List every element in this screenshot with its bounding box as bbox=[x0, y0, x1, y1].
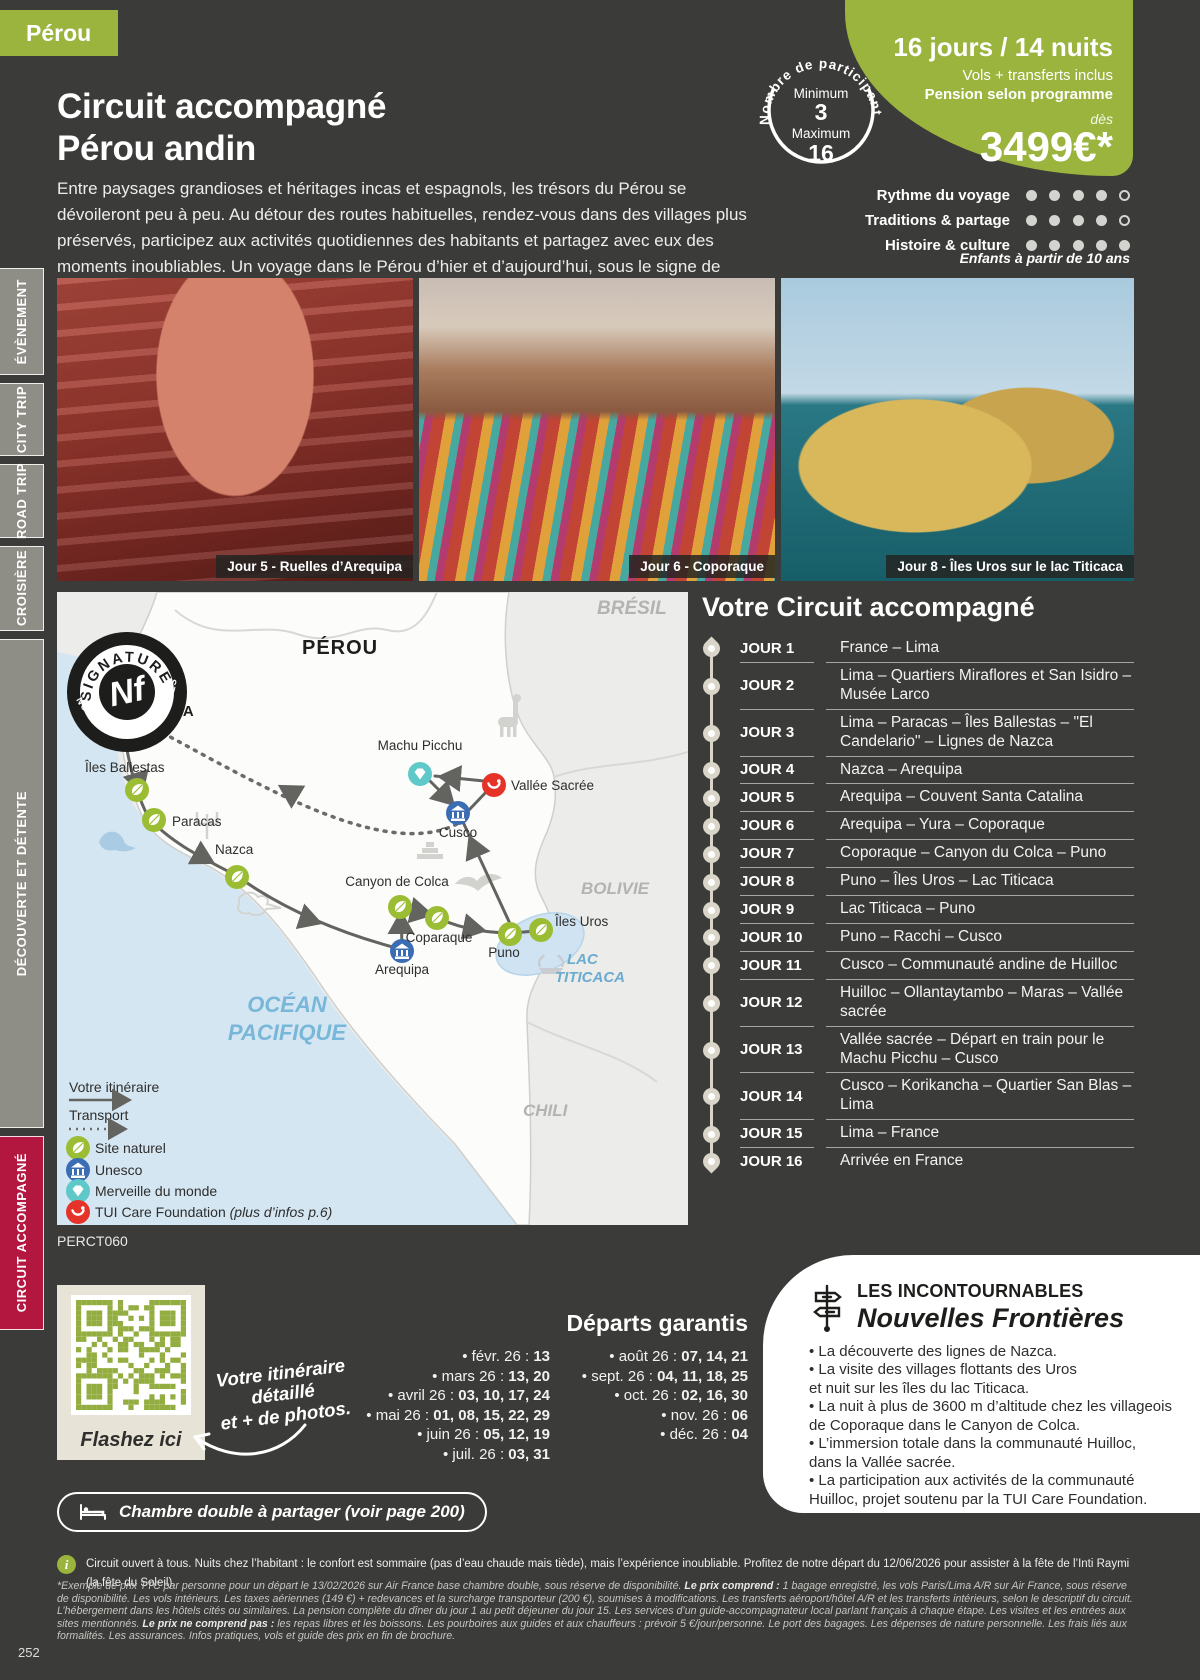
highlights-kicker: LES INCONTOURNABLES bbox=[857, 1281, 1124, 1302]
day-description: Cusco – Korikancha – Quartier San Blas –… bbox=[826, 1073, 1134, 1120]
timeline-marker bbox=[700, 784, 740, 812]
timeline-marker bbox=[700, 1148, 740, 1175]
day-label: JOUR 16 bbox=[740, 1148, 814, 1175]
timeline-dot-icon bbox=[703, 1088, 720, 1105]
day-label: JOUR 9 bbox=[740, 896, 814, 924]
itinerary-row: JOUR 6Arequipa – Yura – Coporaque bbox=[700, 812, 1134, 840]
machu-picchu-marker bbox=[408, 762, 432, 786]
catalog-page: ÉVÈNEMENT CITY TRIP ROAD TRIP CROISIÈRE … bbox=[0, 0, 1200, 1680]
departure-days: 04, 11, 18, 25 bbox=[657, 1368, 748, 1385]
itinerary-row: JOUR 15Lima – France bbox=[700, 1120, 1134, 1148]
sidebar-item-label: DÉCOUVERTE ET DÉTENTE bbox=[14, 791, 29, 976]
timeline-dot-icon bbox=[703, 818, 720, 835]
departure-days: 07, 14, 21 bbox=[681, 1348, 748, 1365]
legend-tui-care-label: TUI Care Foundation (plus d’infos p.6) bbox=[95, 1204, 332, 1220]
photo-caption: Jour 6 - Coporaque bbox=[629, 555, 775, 578]
legend-unesco-label: Unesco bbox=[95, 1162, 143, 1178]
sidebar-item-circuit-accompagne[interactable]: CIRCUIT ACCOMPAGNÉ bbox=[0, 1136, 44, 1330]
participants-min-value: 3 bbox=[815, 99, 828, 125]
itinerary-row: JOUR 14Cusco – Korikancha – Quartier San… bbox=[700, 1073, 1134, 1120]
room-note-label: Chambre double à partager (voir page 200… bbox=[119, 1502, 465, 1522]
map-label-vallee-sacree: Vallée Sacrée bbox=[511, 778, 594, 793]
timeline-dot-icon bbox=[703, 846, 720, 863]
rating-dot-filled bbox=[1073, 190, 1084, 201]
departure-row: • juil. 26 : 03, 31 bbox=[260, 1445, 550, 1465]
itinerary-row: JOUR 10Puno – Racchi – Cusco bbox=[700, 924, 1134, 952]
map-label-nazca: Nazca bbox=[215, 842, 254, 857]
sidebar-item-label: CIRCUIT ACCOMPAGNÉ bbox=[14, 1153, 29, 1312]
timeline-dot-icon bbox=[703, 995, 720, 1012]
map-label-iles-uros: Îles Uros bbox=[554, 914, 609, 929]
rating-dot-empty bbox=[1119, 215, 1130, 226]
itinerary-row: JOUR 4Nazca – Arequipa bbox=[700, 757, 1134, 785]
sidebar-item-evenement[interactable]: ÉVÈNEMENT bbox=[0, 268, 44, 375]
day-description: Lac Titicaca – Puno bbox=[826, 896, 1134, 924]
puno-marker bbox=[498, 922, 522, 946]
map-label-coparaque: Coparaque bbox=[406, 930, 473, 945]
departure-month: • nov. 26 : bbox=[661, 1407, 731, 1424]
page-number: 252 bbox=[18, 1645, 40, 1660]
signpost-icon bbox=[809, 1281, 845, 1333]
rating-dots bbox=[1026, 215, 1130, 226]
rating-dot-filled bbox=[1026, 190, 1037, 201]
itinerary-row: JOUR 7Coporaque – Canyon du Colca – Puno bbox=[700, 840, 1134, 868]
rating-dots bbox=[1026, 190, 1130, 201]
timeline-marker bbox=[700, 710, 740, 757]
departure-days: 02, 16, 30 bbox=[681, 1387, 748, 1404]
timeline-dot-icon bbox=[703, 929, 720, 946]
vallee-sacree-marker bbox=[482, 773, 506, 797]
highlights-box: LES INCONTOURNABLES Nouvelles Frontières… bbox=[763, 1255, 1200, 1513]
qr-code[interactable] bbox=[71, 1295, 191, 1415]
timeline-marker bbox=[700, 924, 740, 952]
itinerary-row: JOUR 5Arequipa – Couvent Santa Catalina bbox=[700, 784, 1134, 812]
day-description: Lima – Paracas – Îles Ballestas – "El Ca… bbox=[826, 710, 1134, 757]
day-label: JOUR 15 bbox=[740, 1120, 814, 1148]
departure-row: • oct. 26 : 02, 16, 30 bbox=[470, 1386, 748, 1406]
room-note-pill: Chambre double à partager (voir page 200… bbox=[57, 1492, 487, 1532]
timeline-dot-icon bbox=[703, 790, 720, 807]
day-description: Cusco – Communauté andine de Huilloc bbox=[826, 952, 1134, 980]
day-label: JOUR 8 bbox=[740, 868, 814, 896]
departure-days: 04 bbox=[731, 1426, 748, 1443]
canyon-colca-marker bbox=[388, 895, 412, 919]
children-note: Enfants à partir de 10 ans bbox=[700, 250, 1130, 266]
departures-title: Départs garantis bbox=[448, 1310, 748, 1337]
legend-transport-label: Transport bbox=[69, 1107, 129, 1123]
highlight-item: • La participation aux activités de la c… bbox=[809, 1472, 1176, 1509]
timeline-marker bbox=[700, 635, 740, 663]
highlight-item: • La découverte des lignes de Nazca. bbox=[809, 1343, 1176, 1361]
title-line1: Circuit accompagné bbox=[57, 86, 386, 128]
map-label-paracas: Paracas bbox=[172, 814, 222, 829]
paracas-marker bbox=[142, 808, 166, 832]
departure-month: • juil. 26 : bbox=[443, 1446, 508, 1463]
map-label-bresil: BRÉSIL bbox=[597, 597, 667, 619]
sidebar-item-label: ÉVÈNEMENT bbox=[14, 279, 29, 364]
highlights-list: • La découverte des lignes de Nazca.• La… bbox=[809, 1343, 1176, 1509]
sidebar-item-label: ROAD TRIP bbox=[14, 463, 29, 539]
timeline-dot-icon bbox=[703, 902, 720, 919]
day-label: JOUR 5 bbox=[740, 784, 814, 812]
legal-segment: *Exemple de prix TTC par personne pour u… bbox=[57, 1580, 684, 1592]
timeline-marker bbox=[700, 980, 740, 1027]
map-label-ocean-1: OCÉAN bbox=[247, 992, 328, 1017]
title-line2: Pérou andin bbox=[57, 128, 386, 170]
highlight-item: • La visite des villages flottants des U… bbox=[809, 1361, 1176, 1398]
day-label: JOUR 14 bbox=[740, 1073, 814, 1120]
sidebar-item-label: CROISIÈRE bbox=[14, 550, 29, 626]
day-description: Coporaque – Canyon du Colca – Puno bbox=[826, 840, 1134, 868]
rating-label: Traditions & partage bbox=[865, 212, 1010, 229]
sidebar-item-croisiere[interactable]: CROISIÈRE bbox=[0, 546, 44, 631]
day-description: Puno – Racchi – Cusco bbox=[826, 924, 1134, 952]
highlight-item: • La nuit à plus de 3600 m d’altitude ch… bbox=[809, 1398, 1176, 1435]
itinerary-title: Votre Circuit accompagné bbox=[702, 592, 1134, 623]
map-label-chili: CHILI bbox=[523, 1101, 569, 1120]
itinerary-panel: Votre Circuit accompagné JOUR 1France – … bbox=[700, 592, 1134, 1175]
timeline-dot-icon bbox=[703, 874, 720, 891]
sidebar-item-label: CITY TRIP bbox=[14, 386, 29, 453]
day-description: Lima – France bbox=[826, 1120, 1134, 1148]
departure-row: • déc. 26 : 04 bbox=[470, 1425, 748, 1445]
photo-arequipa-alley: Jour 5 - Ruelles d’Arequipa bbox=[57, 278, 413, 581]
rating-dot-empty bbox=[1119, 190, 1130, 201]
departure-days: 03, 31 bbox=[508, 1446, 550, 1463]
legal-bold-segment: Le prix ne comprend pas : bbox=[142, 1618, 277, 1630]
day-label: JOUR 6 bbox=[740, 812, 814, 840]
timeline-dot-icon bbox=[703, 1042, 720, 1059]
timeline-marker bbox=[700, 896, 740, 924]
timeline-marker bbox=[700, 757, 740, 785]
timeline-marker bbox=[700, 840, 740, 868]
departure-month: • août 26 : bbox=[609, 1348, 681, 1365]
map-label-lac-2: TITICACA bbox=[555, 969, 625, 986]
rating-dot-filled bbox=[1073, 215, 1084, 226]
photo-coporaque-portrait: Jour 6 - Coporaque bbox=[419, 278, 775, 581]
day-description: Lima – Quartiers Miraflores et San Isidr… bbox=[826, 663, 1134, 710]
timeline-dot-icon bbox=[703, 762, 720, 779]
day-description: Arequipa – Couvent Santa Catalina bbox=[826, 784, 1134, 812]
timeline-marker bbox=[700, 952, 740, 980]
info-icon: i bbox=[57, 1555, 76, 1574]
departures-column-2: • août 26 : 07, 14, 21• sept. 26 : 04, 1… bbox=[470, 1347, 748, 1445]
departure-row: • sept. 26 : 04, 11, 18, 25 bbox=[470, 1367, 748, 1387]
departure-month: • avril 26 : bbox=[388, 1387, 458, 1404]
rating-label: Rythme du voyage bbox=[877, 187, 1010, 204]
rating-dot-filled bbox=[1049, 190, 1060, 201]
itinerary-row: JOUR 16Arrivée en France bbox=[700, 1148, 1134, 1175]
day-description: Arrivée en France bbox=[826, 1148, 1134, 1175]
sidebar-item-decouverte-detente[interactable]: DÉCOUVERTE ET DÉTENTE bbox=[0, 639, 44, 1128]
legal-bold-segment: Le prix comprend : bbox=[684, 1580, 782, 1592]
day-label: JOUR 7 bbox=[740, 840, 814, 868]
iles-ballestas-marker bbox=[125, 778, 149, 802]
itinerary-row: JOUR 1France – Lima bbox=[700, 635, 1134, 663]
legend-tui-care-note: (plus d’infos p.6) bbox=[230, 1204, 333, 1220]
map-label-arequipa: Arequipa bbox=[375, 962, 430, 977]
timeline-pin-start-icon bbox=[699, 637, 723, 661]
map-label-perou: PÉROU bbox=[302, 636, 378, 659]
nazca-marker bbox=[225, 865, 249, 889]
rating-dot-filled bbox=[1049, 215, 1060, 226]
timeline-dot-icon bbox=[703, 725, 720, 742]
day-description: Vallée sacrée – Départ en train pour le … bbox=[826, 1027, 1134, 1074]
itinerary-map: PÉROU BRÉSIL BOLIVIE CHILI OCÉAN PACIFIQ… bbox=[57, 592, 688, 1225]
timeline-marker bbox=[700, 812, 740, 840]
itinerary-row: JOUR 12Huilloc – Ollantaytambo – Maras –… bbox=[700, 980, 1134, 1027]
participants-max-label: Maximum bbox=[792, 126, 851, 141]
day-label: JOUR 11 bbox=[740, 952, 814, 980]
timeline-marker bbox=[700, 1120, 740, 1148]
itinerary-list: JOUR 1France – LimaJOUR 2Lima – Quartier… bbox=[700, 635, 1134, 1175]
departure-month: • déc. 26 : bbox=[660, 1426, 731, 1443]
departure-row: • août 26 : 07, 14, 21 bbox=[470, 1347, 748, 1367]
itinerary-row: JOUR 2Lima – Quartiers Miraflores et San… bbox=[700, 663, 1134, 710]
photo-caption: Jour 8 - Îles Uros sur le lac Titicaca bbox=[886, 555, 1134, 578]
rating-row: Traditions & partage bbox=[700, 208, 1130, 233]
cusco-marker bbox=[446, 801, 470, 825]
rating-dot-filled bbox=[1096, 215, 1107, 226]
day-label: JOUR 12 bbox=[740, 980, 814, 1027]
day-label: JOUR 1 bbox=[740, 635, 814, 663]
ratings-panel: Rythme du voyageTraditions & partageHist… bbox=[700, 183, 1130, 258]
coparaque-marker bbox=[425, 906, 449, 930]
map-label-puno: Puno bbox=[488, 945, 520, 960]
day-description: France – Lima bbox=[826, 635, 1134, 663]
day-description: Huilloc – Ollantaytambo – Maras – Vallée… bbox=[826, 980, 1134, 1027]
departure-days: 06 bbox=[731, 1407, 748, 1424]
day-label: JOUR 3 bbox=[740, 710, 814, 757]
timeline-pin-end-icon bbox=[699, 1150, 723, 1174]
timeline-dot-icon bbox=[703, 678, 720, 695]
rating-row: Rythme du voyage bbox=[700, 183, 1130, 208]
day-label: JOUR 10 bbox=[740, 924, 814, 952]
timeline-marker bbox=[700, 1073, 740, 1120]
participants-badge: Nombre de participants Minimum 3 Maximum… bbox=[756, 48, 886, 182]
iles-uros-marker bbox=[529, 918, 553, 942]
itinerary-row: JOUR 3Lima – Paracas – Îles Ballestas – … bbox=[700, 710, 1134, 757]
itinerary-row: JOUR 11Cusco – Communauté andine de Huil… bbox=[700, 952, 1134, 980]
timeline-dot-icon bbox=[703, 1126, 720, 1143]
map-label-machu-picchu: Machu Picchu bbox=[378, 738, 463, 753]
day-label: JOUR 13 bbox=[740, 1027, 814, 1074]
departure-row: • nov. 26 : 06 bbox=[470, 1406, 748, 1426]
map-label-canyon-colca: Canyon de Colca bbox=[345, 874, 449, 889]
itinerary-row: JOUR 13Vallée sacrée – Départ en train p… bbox=[700, 1027, 1134, 1074]
map-label-bolivie: BOLIVIE bbox=[581, 879, 650, 898]
day-label: JOUR 2 bbox=[740, 663, 814, 710]
departure-month: • sept. 26 : bbox=[582, 1368, 657, 1385]
map-label-iles-ballestas: Îles Ballestas bbox=[84, 760, 165, 775]
day-description: Puno – Îles Uros – Lac Titicaca bbox=[826, 868, 1134, 896]
day-description: Arequipa – Yura – Coporaque bbox=[826, 812, 1134, 840]
itinerary-row: JOUR 9Lac Titicaca – Puno bbox=[700, 896, 1134, 924]
legal-text: *Exemple de prix TTC par personne pour u… bbox=[57, 1580, 1140, 1643]
rating-dot-filled bbox=[1096, 190, 1107, 201]
timeline-dot-icon bbox=[703, 957, 720, 974]
day-label: JOUR 4 bbox=[740, 757, 814, 785]
participants-max-value: 16 bbox=[808, 140, 834, 166]
map-label-lac-1: LAC bbox=[567, 951, 599, 968]
legend-site-naturel-label: Site naturel bbox=[95, 1140, 166, 1156]
timeline-marker bbox=[700, 868, 740, 896]
sidebar-item-road-trip[interactable]: ROAD TRIP bbox=[0, 464, 44, 538]
rating-dot-filled bbox=[1026, 215, 1037, 226]
departure-month: • oct. 26 : bbox=[614, 1387, 681, 1404]
highlights-brand: Nouvelles Frontières bbox=[857, 1303, 1124, 1334]
timeline-marker bbox=[700, 663, 740, 710]
departure-month: • mai 26 : bbox=[366, 1407, 433, 1424]
bed-icon bbox=[79, 1503, 107, 1521]
product-code: PERCT060 bbox=[57, 1233, 128, 1249]
map-label-ocean-2: PACIFIQUE bbox=[228, 1020, 347, 1045]
country-tag: Pérou bbox=[0, 10, 118, 56]
day-description: Nazca – Arequipa bbox=[826, 757, 1134, 785]
map-label-cusco: Cusco bbox=[439, 825, 477, 840]
highlight-item: • L’immersion totale dans la communauté … bbox=[809, 1435, 1176, 1472]
legend-merveille-label: Merveille du monde bbox=[95, 1183, 217, 1199]
timeline-marker bbox=[700, 1027, 740, 1074]
photo-caption: Jour 5 - Ruelles d’Arequipa bbox=[216, 555, 413, 578]
sidebar-item-city-trip[interactable]: CITY TRIP bbox=[0, 383, 44, 456]
page-title: Circuit accompagné Pérou andin bbox=[57, 86, 386, 170]
photo-uros-boats: Jour 8 - Îles Uros sur le lac Titicaca bbox=[781, 278, 1134, 581]
legend-itinerary-label: Votre itinéraire bbox=[69, 1079, 159, 1095]
itinerary-row: JOUR 8Puno – Îles Uros – Lac Titicaca bbox=[700, 868, 1134, 896]
